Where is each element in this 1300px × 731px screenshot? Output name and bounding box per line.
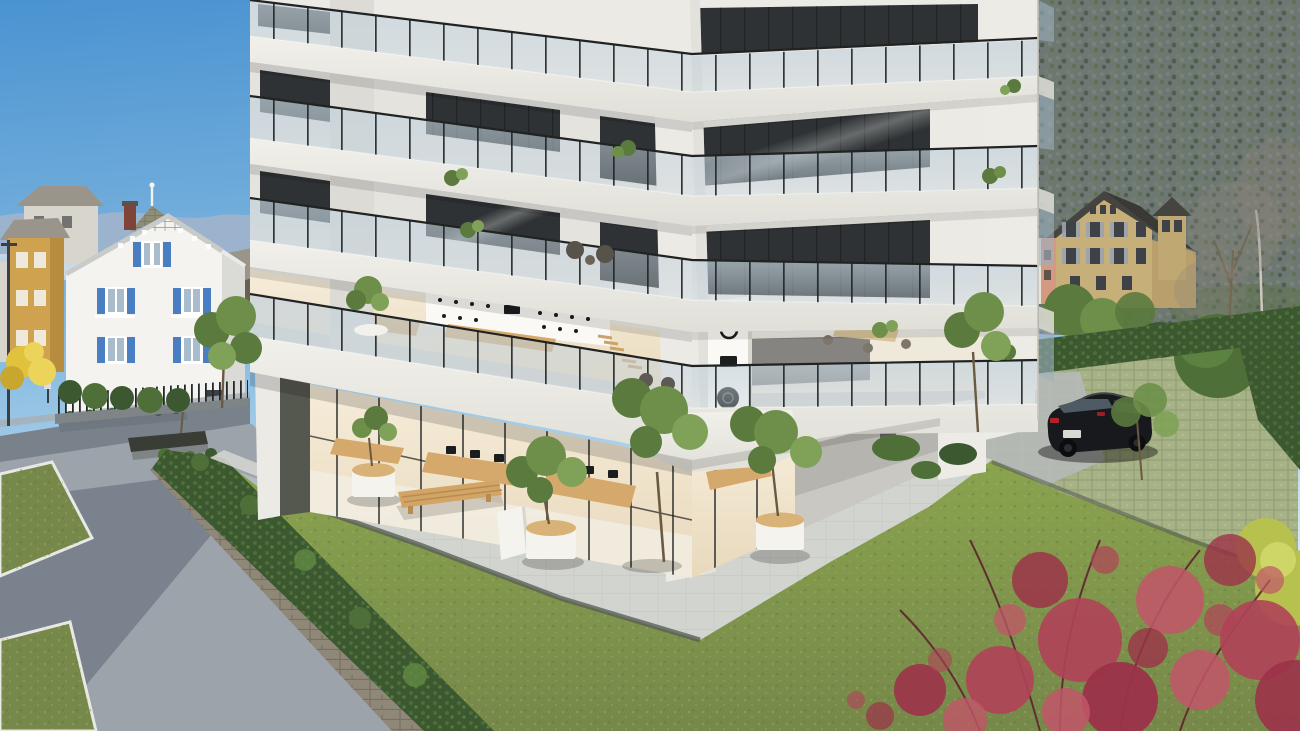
scene: Photorealistic rendering of a modern mul… — [0, 0, 1300, 731]
sign-panel — [497, 506, 529, 560]
rendering-stage: Photorealistic rendering of a modern mul… — [0, 0, 1300, 731]
attic-window — [133, 241, 171, 268]
